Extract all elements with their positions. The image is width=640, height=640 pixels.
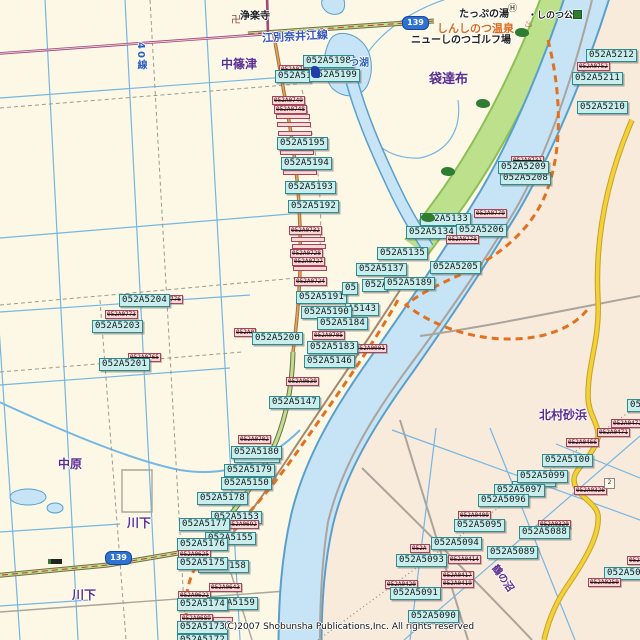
place-name: 中篠津 bbox=[221, 55, 257, 72]
poi-blue-icon bbox=[311, 66, 320, 78]
map-code-label-small[interactable]: 052A0752 bbox=[577, 62, 610, 71]
map-code-label[interactable]: 05 bbox=[342, 282, 358, 295]
map-code-label-small[interactable]: 052A0773 bbox=[105, 310, 138, 319]
place-name: 北村砂浜 bbox=[539, 406, 587, 423]
map-code-label[interactable]: 052A5094 bbox=[431, 537, 482, 550]
occluded-label-strip bbox=[293, 266, 327, 271]
occluded-label-strip bbox=[276, 114, 310, 119]
hotel-icon: Ⓗ bbox=[508, 5, 517, 14]
map-code-label[interactable]: 052A5150 bbox=[221, 477, 272, 490]
map-code-label[interactable]: 052A5198 bbox=[303, 55, 354, 68]
map-code-label[interactable]: 052A5135 bbox=[377, 247, 428, 260]
map-code-label-small[interactable]: 052A bbox=[410, 544, 430, 553]
map-code-label[interactable]: 052A5093 bbox=[396, 554, 447, 567]
map-code-label[interactable]: 052A5137 bbox=[356, 263, 407, 276]
map-code-label[interactable]: 052A5177 bbox=[179, 518, 230, 531]
map-code-label[interactable]: 052A5194 bbox=[281, 157, 332, 170]
label-layer: 052A0751052A51052A5198052A5199052A074905… bbox=[0, 0, 640, 640]
tree-icon bbox=[515, 28, 529, 37]
route-139-badge: 139 bbox=[402, 16, 429, 30]
map-code-label[interactable]: 052A5203 bbox=[92, 320, 143, 333]
occluded-label-strip bbox=[283, 170, 317, 175]
map-code-label[interactable]: 052A5189 bbox=[384, 277, 435, 290]
map-code-label-small[interactable]: 052A0705 bbox=[312, 331, 345, 340]
map-code-label-small[interactable]: 052A0643 bbox=[209, 583, 242, 592]
map-code-label[interactable]: 052A5212 bbox=[586, 49, 637, 62]
occluded-label-strip bbox=[278, 131, 312, 136]
map-code-label-small[interactable]: 052A0749 bbox=[272, 96, 305, 105]
temple-icon: 卍 bbox=[231, 16, 241, 26]
map-code-label[interactable]: 052A5204 bbox=[119, 294, 170, 307]
tree-icon bbox=[421, 213, 435, 222]
map-code-label[interactable]: 052A5184 bbox=[317, 317, 368, 330]
place-name: たっぷの湯 bbox=[459, 5, 509, 20]
map-code-label[interactable]: 052A5209 bbox=[498, 161, 549, 174]
map-code-label[interactable]: 052A5091 bbox=[390, 587, 441, 600]
map-code-label[interactable]: 052A5146 bbox=[304, 355, 355, 368]
tree-icon bbox=[476, 99, 490, 108]
map-code-label-small[interactable]: 052A0471 bbox=[597, 428, 630, 437]
map-code-label[interactable]: 052A5147 bbox=[269, 396, 320, 409]
occluded-label-strip bbox=[291, 237, 325, 242]
map-code-label[interactable]: 052A5180 bbox=[231, 446, 282, 459]
route-139-badge: 139 bbox=[105, 551, 132, 565]
map-code-label-small[interactable]: 052A0732 bbox=[289, 226, 322, 235]
map-code-label-small[interactable]: 052A0250 bbox=[588, 578, 621, 587]
copyright-text: (C)2007 Shobunsha Publications,Inc. All … bbox=[224, 622, 474, 632]
map-code-label[interactable]: 052A5200 bbox=[252, 332, 303, 345]
map-code-label-small[interactable]: 052A0419 bbox=[441, 579, 474, 588]
occluded-label-strip bbox=[277, 122, 311, 127]
map-code-label[interactable]: 052A5096 bbox=[478, 494, 529, 507]
map-code-label[interactable]: 052A5210 bbox=[577, 101, 628, 114]
map-code-label-small[interactable]: 052A0414 bbox=[448, 555, 481, 564]
map-code-label-small[interactable]: 052A0472 bbox=[611, 419, 640, 428]
place-name: 川下 bbox=[72, 586, 96, 603]
map-code-label[interactable]: 052A5183 bbox=[307, 341, 358, 354]
map-code-label[interactable]: 052A5174 bbox=[177, 598, 228, 611]
place-name: 袋達布 bbox=[429, 68, 468, 87]
map-code-label-small[interactable]: 052A0326 bbox=[574, 486, 607, 495]
place-name: 鶴の沼 bbox=[489, 561, 518, 594]
map-code-label[interactable]: 052A5089 bbox=[487, 546, 538, 559]
map-code-label[interactable]: 052A5175 bbox=[177, 557, 228, 570]
place-name: ニューしのつゴルフ場 bbox=[411, 31, 511, 46]
map-code-label[interactable]: 052A5172 bbox=[177, 634, 228, 640]
map-code-label-small[interactable]: 052A bbox=[627, 556, 640, 565]
map-code-label-small[interactable]: 052A0778 bbox=[446, 235, 479, 244]
map-code-label[interactable]: 052A5178 bbox=[197, 492, 248, 505]
map-code-label[interactable]: 052A5193 bbox=[285, 181, 336, 194]
map-code-label[interactable]: 052A5088 bbox=[519, 526, 570, 539]
park-icon bbox=[573, 10, 582, 19]
map-canvas: 052A0751052A51052A5198052A5199052A074905… bbox=[0, 0, 640, 640]
map-code-label-small[interactable]: 052A0692 bbox=[226, 520, 259, 529]
place-name: 浄楽寺 bbox=[240, 7, 270, 22]
bus-stop-icon bbox=[48, 559, 62, 564]
tree-icon bbox=[441, 167, 455, 176]
map-code-label-small[interactable]: 052A0724 bbox=[294, 277, 327, 286]
map-code-label-small[interactable]: 052A0748 bbox=[274, 105, 307, 114]
map-code-label[interactable]: 052A5099 bbox=[517, 470, 568, 483]
map-code-label[interactable]: 052A5191 bbox=[296, 291, 347, 304]
occluded-label-strip bbox=[280, 150, 314, 155]
map-code-label[interactable]: 052A5211 bbox=[572, 72, 623, 85]
place-name: 川下 bbox=[127, 514, 151, 531]
map-code-label[interactable]: 052A5173 bbox=[177, 621, 228, 634]
place-name: 江別奈井江線 bbox=[262, 26, 329, 45]
map-code-label[interactable]: 052A5192 bbox=[288, 200, 339, 213]
map-code-label-small[interactable]: 052A0630 bbox=[286, 377, 319, 386]
map-code-label-small[interactable]: 052A0702 bbox=[238, 435, 271, 444]
map-code-label[interactable]: 052A5195 bbox=[277, 137, 328, 150]
map-code-label-small[interactable]: 052A0466 bbox=[566, 438, 599, 447]
place-name: つ湖 bbox=[349, 54, 369, 69]
map-code-label-small[interactable]: 052A0727 bbox=[292, 257, 325, 266]
map-code-label-small[interactable]: 052A0001 bbox=[354, 344, 387, 353]
place-name: 40線 bbox=[133, 42, 148, 72]
map-code-label-small[interactable]: 052A0779 bbox=[474, 209, 507, 218]
count-2-icon: 2 bbox=[604, 478, 615, 489]
map-code-label[interactable]: 052A51 bbox=[275, 70, 311, 83]
map-code-label[interactable]: 052A5205 bbox=[430, 261, 481, 274]
map-code-label[interactable]: 052A5179 bbox=[224, 464, 275, 477]
map-code-label[interactable]: 052A5095 bbox=[454, 519, 505, 532]
map-code-label[interactable]: 05 bbox=[627, 399, 640, 412]
map-code-label[interactable]: 052A5201 bbox=[99, 358, 150, 371]
map-code-label[interactable]: 052A5100 bbox=[542, 454, 593, 467]
place-name: 中原 bbox=[58, 455, 82, 472]
